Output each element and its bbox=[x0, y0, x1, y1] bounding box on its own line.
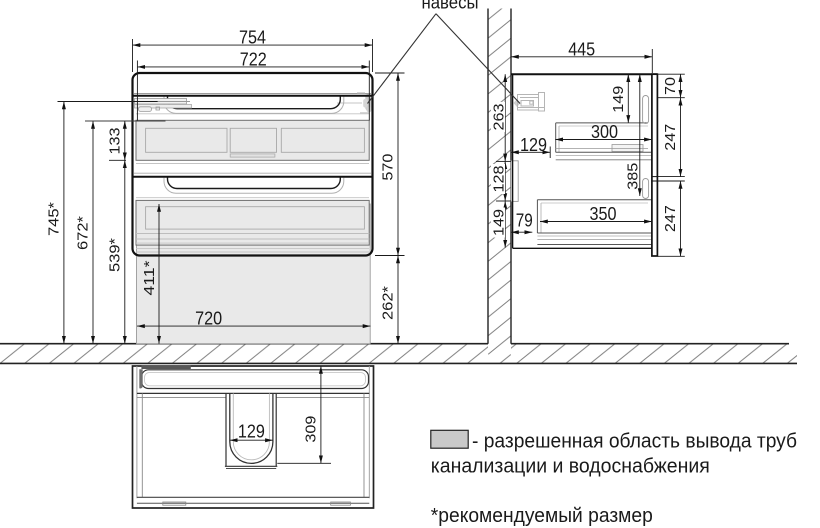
svg-text:570: 570 bbox=[380, 154, 397, 181]
svg-text:247: 247 bbox=[662, 205, 679, 232]
svg-text:- разрешенная область вывода т: - разрешенная область вывода труб bbox=[472, 431, 797, 453]
svg-text:129: 129 bbox=[520, 135, 547, 155]
svg-text:263: 263 bbox=[491, 104, 508, 131]
svg-text:300: 300 bbox=[591, 122, 618, 142]
svg-text:79: 79 bbox=[516, 211, 533, 231]
svg-text:247: 247 bbox=[662, 124, 679, 151]
svg-text:720: 720 bbox=[195, 309, 222, 329]
svg-text:309: 309 bbox=[302, 416, 319, 443]
svg-text:350: 350 bbox=[590, 204, 617, 224]
svg-text:745*: 745* bbox=[46, 202, 63, 236]
svg-text:411*: 411* bbox=[141, 260, 158, 295]
svg-text:672*: 672* bbox=[75, 216, 92, 250]
svg-text:754: 754 bbox=[239, 28, 266, 48]
svg-text:128: 128 bbox=[491, 166, 508, 193]
svg-text:262*: 262* bbox=[380, 286, 397, 320]
svg-text:129: 129 bbox=[238, 422, 265, 442]
svg-text:навесы: навесы bbox=[422, 0, 479, 13]
svg-text:канализации и водоснабжения: канализации и водоснабжения bbox=[431, 456, 710, 478]
svg-text:149: 149 bbox=[491, 209, 508, 236]
svg-text:133: 133 bbox=[106, 128, 123, 155]
svg-text:445: 445 bbox=[568, 39, 595, 59]
svg-text:149: 149 bbox=[610, 86, 627, 113]
svg-text:385: 385 bbox=[624, 163, 641, 190]
svg-text:722: 722 bbox=[240, 49, 267, 69]
svg-text:70: 70 bbox=[662, 77, 679, 95]
svg-text:*рекомендуемый размер: *рекомендуемый размер bbox=[431, 505, 653, 527]
svg-text:539*: 539* bbox=[106, 238, 123, 272]
